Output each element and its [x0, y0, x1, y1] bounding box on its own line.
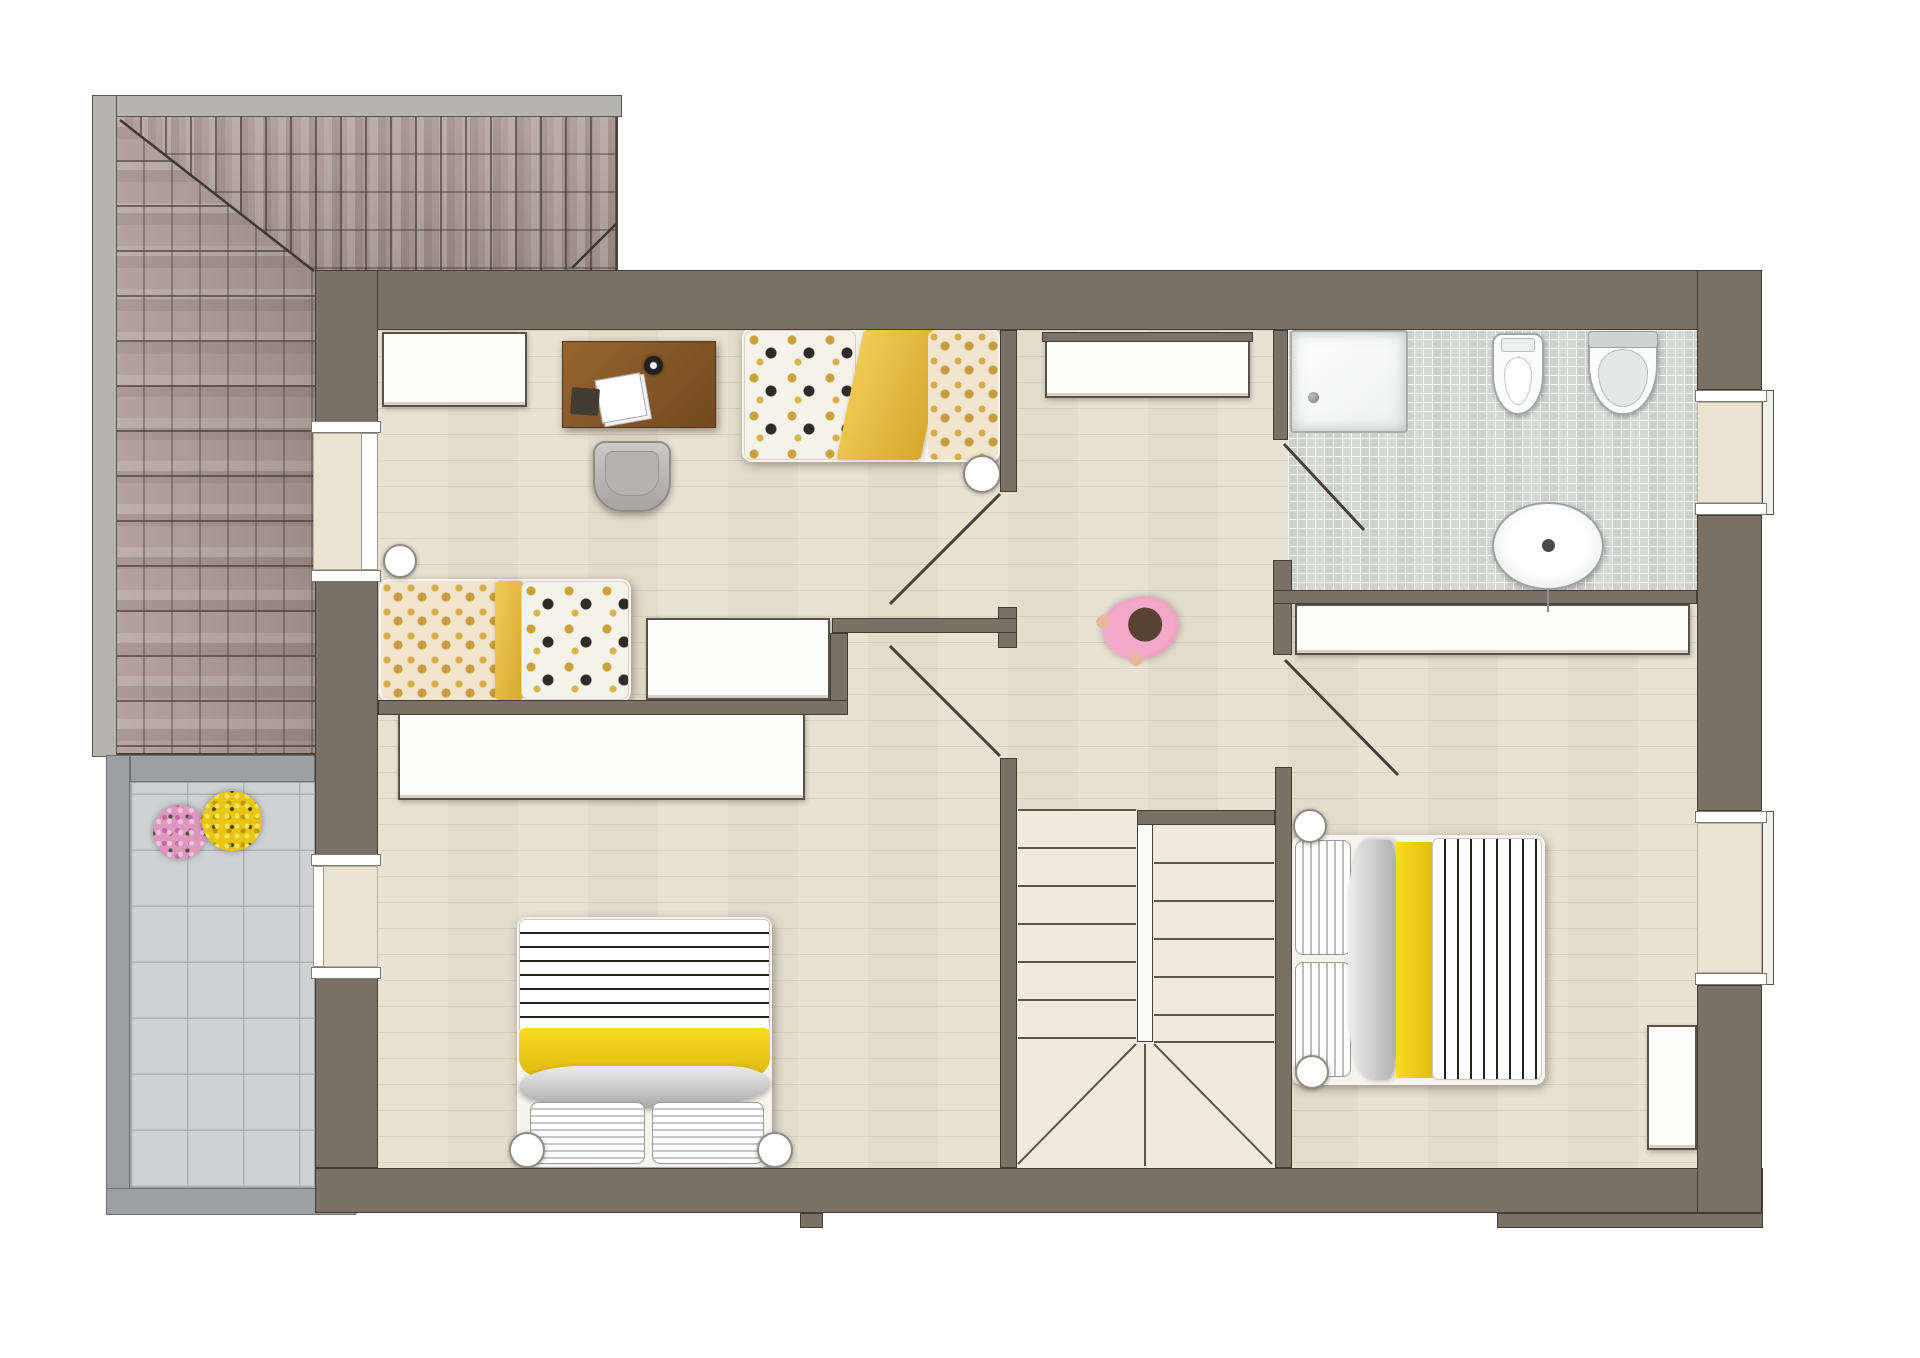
master-bed-duvet: [1432, 838, 1542, 1080]
kids-bed-left-pillow: [521, 581, 629, 700]
bidet: [1492, 333, 1544, 415]
wall-kidsroom-south: [832, 618, 1017, 633]
lower-room-wardrobe: [398, 713, 805, 800]
wall-cabinet-ledge: [1042, 332, 1253, 342]
hallway-sideboard: [1045, 340, 1250, 398]
master-window-sill: [1762, 811, 1774, 985]
lower-bed-pillow-left: [530, 1102, 645, 1164]
desk-notebook: [570, 387, 600, 416]
wall-kidsroom-hall: [1000, 330, 1017, 492]
master-dresser: [1647, 1025, 1697, 1150]
roof-eave-top: [92, 95, 622, 117]
shower-tray: [1290, 330, 1408, 433]
stair-center-divider: [1137, 823, 1153, 1042]
wall-right-upper: [1697, 270, 1762, 390]
terrace-parapet-top: [130, 755, 315, 782]
wall-stair-left: [1000, 758, 1017, 1168]
wall-right-middle: [1697, 515, 1762, 811]
master-wardrobe: [1295, 604, 1690, 655]
window-left-recess: [313, 433, 363, 570]
lower-room-stool-left: [509, 1132, 545, 1168]
kids-room-dresser: [382, 332, 527, 407]
kids-bed-left-gold-band: [495, 581, 523, 700]
wall-foot-stub: [800, 1213, 823, 1228]
wall-stair-right: [1275, 767, 1292, 1168]
window-left-bar-top: [311, 421, 381, 433]
wall-between-left-rooms: [378, 700, 848, 715]
wall-top: [315, 270, 1762, 330]
terrace-door-recess: [322, 866, 378, 967]
terrace-door-bar-top: [311, 854, 381, 866]
floor-plan-stage: [0, 0, 1920, 1358]
desk-papers: [595, 372, 648, 423]
master-window-bar-top: [1695, 811, 1767, 823]
terrace-door-bar-bottom: [311, 967, 381, 979]
wall-foot-right: [1497, 1213, 1763, 1228]
bath-window-recess: [1697, 402, 1762, 503]
bath-window-sill: [1762, 390, 1774, 515]
window-left-glass: [361, 433, 378, 570]
kids-bed-top-duvet: [928, 330, 998, 460]
kids-room-stool-left: [383, 544, 417, 578]
master-nightstand-top: [1293, 809, 1327, 843]
master-bed-gray-fold: [1348, 840, 1400, 1080]
wall-bath-left: [1273, 330, 1288, 440]
wall-stair-top-cap: [1137, 810, 1275, 825]
wall-bottom: [315, 1168, 1763, 1213]
master-nightstand-bottom: [1295, 1055, 1329, 1089]
master-bed-pillow-top: [1295, 840, 1351, 955]
terrace-parapet-left: [106, 755, 130, 1215]
kids-room-stool-right: [963, 455, 1001, 493]
lower-room-stool-right: [757, 1132, 793, 1168]
master-window-recess: [1697, 823, 1762, 973]
wall-right-lower: [1697, 985, 1762, 1213]
roof-eave-left: [92, 95, 117, 757]
planter-yellow-flowers: [202, 791, 262, 851]
wall-hall-master: [1273, 560, 1292, 655]
lower-bed-pillow-right: [652, 1102, 764, 1164]
wall-left-middle: [315, 580, 378, 866]
lower-room-sideboard: [646, 618, 830, 700]
kids-bed-left-duvet: [381, 581, 501, 700]
washbasin: [1492, 502, 1604, 590]
desk-chair: [593, 441, 671, 512]
master-window-bar-bottom: [1695, 973, 1767, 985]
wall-bath-bottom: [1273, 590, 1697, 604]
master-bed-yellow-band: [1396, 842, 1436, 1078]
lower-bed-duvet: [519, 919, 770, 1035]
desk-cup: [644, 356, 663, 375]
wall-corner-top-left: [315, 270, 378, 423]
bath-window-bar-top: [1695, 390, 1767, 402]
window-left-bar-bottom: [311, 570, 381, 582]
bath-window-bar-bottom: [1695, 503, 1767, 515]
terrace-door-glass: [313, 866, 324, 967]
wall-left-lower: [315, 967, 378, 1168]
planter-pink-flowers: [153, 805, 207, 859]
